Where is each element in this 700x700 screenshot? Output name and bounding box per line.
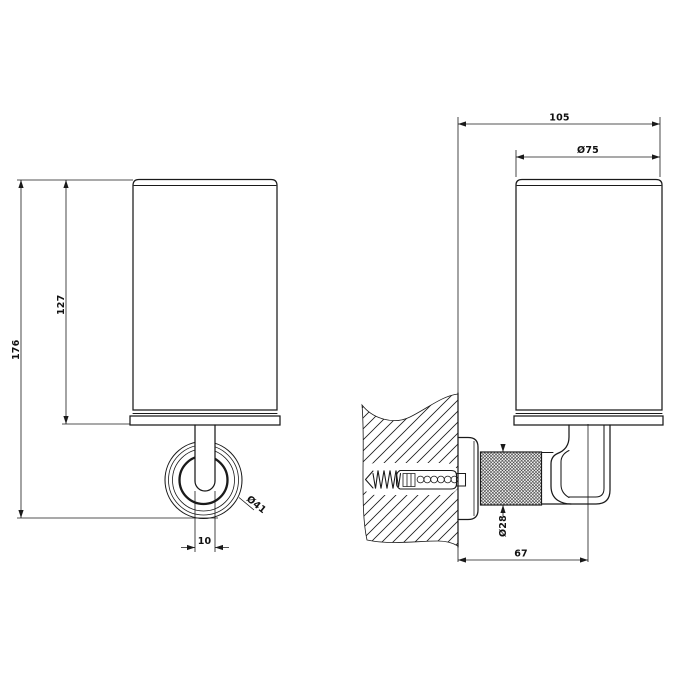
dim-total-depth: 105 <box>458 113 660 178</box>
dim-label-total-height: 176 <box>11 339 22 360</box>
cup-base-plate-side <box>514 416 663 425</box>
wall-flange-side <box>458 438 478 520</box>
knurled-boss <box>481 452 542 505</box>
dim-label-wall-to-axis: 67 <box>514 549 528 560</box>
cup-side <box>514 180 663 426</box>
wall-section <box>361 117 460 562</box>
technical-drawing-canvas: 176 127 <box>0 0 700 700</box>
side-view: 105 Ø75 Ø28 67 <box>361 113 663 563</box>
mount-stem <box>195 425 215 491</box>
drawing-svg: 176 127 <box>0 0 700 700</box>
front-view: 176 127 <box>11 180 280 553</box>
dim-cup-height: 127 <box>56 180 69 424</box>
dim-label-stem-width: 10 <box>198 536 212 547</box>
dim-stem-width: 10 <box>181 491 229 552</box>
dim-total-height: 176 <box>11 180 24 518</box>
dim-label-knurl-diameter: Ø28 <box>498 515 509 537</box>
dim-cup-diameter: Ø75 <box>516 145 660 177</box>
dim-label-cup-height: 127 <box>56 295 67 315</box>
holder-arm <box>542 425 611 504</box>
screw-clearance <box>361 463 460 495</box>
cup-front <box>130 180 280 426</box>
dim-flange-diameter: Ø41 <box>239 494 268 516</box>
dim-label-total-depth: 105 <box>549 113 569 124</box>
cup-base-plate <box>130 416 280 425</box>
dim-label-flange-diameter: Ø41 <box>244 494 268 516</box>
dim-label-cup-diameter: Ø75 <box>577 145 599 156</box>
